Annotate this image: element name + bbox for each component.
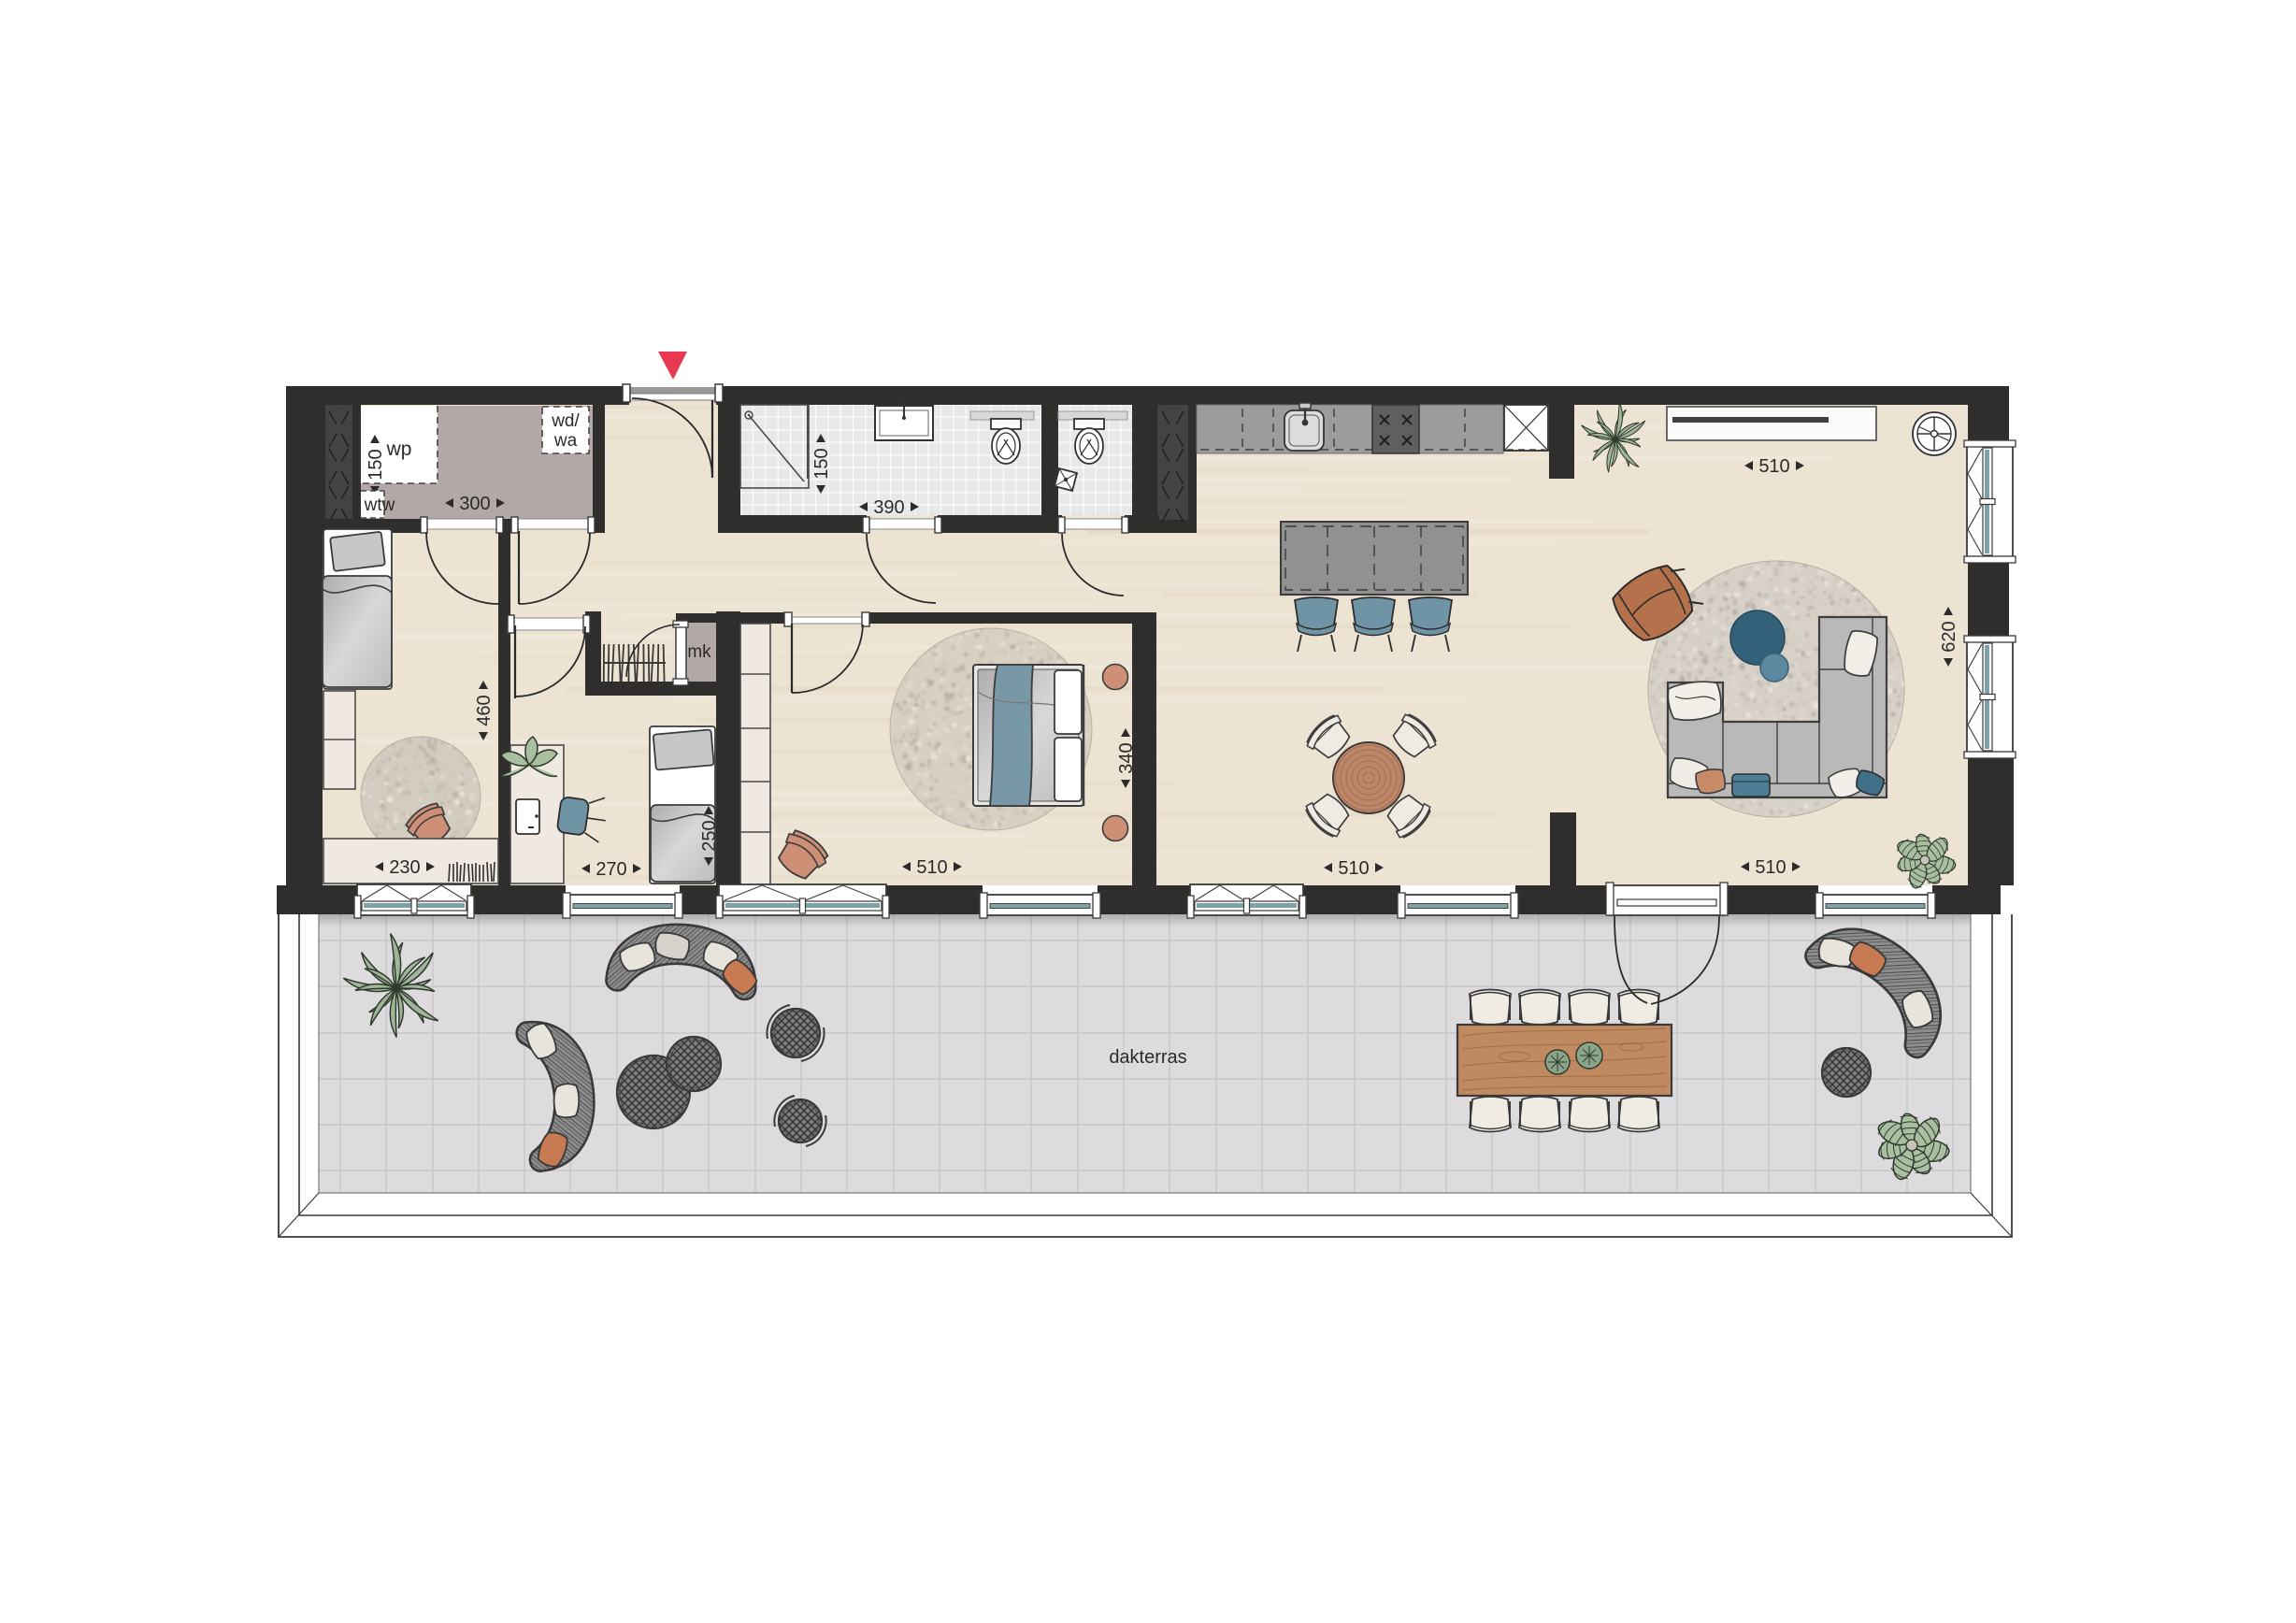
svg-text:510: 510	[1338, 858, 1369, 879]
svg-text:510: 510	[1755, 857, 1786, 878]
svg-text:300: 300	[459, 494, 490, 514]
svg-text:270: 270	[596, 859, 626, 880]
svg-text:150: 150	[366, 449, 386, 480]
svg-text:wtw: wtw	[364, 496, 395, 515]
svg-text:230: 230	[389, 857, 420, 878]
svg-text:mk: mk	[687, 642, 711, 662]
svg-text:250: 250	[699, 820, 720, 851]
svg-text:wd/: wd/	[551, 411, 580, 431]
svg-text:390: 390	[873, 497, 904, 518]
svg-text:510: 510	[1758, 456, 1789, 477]
svg-text:150: 150	[811, 448, 832, 479]
svg-text:wa: wa	[553, 431, 578, 451]
svg-text:dakterras: dakterras	[1109, 1047, 1186, 1068]
svg-text:510: 510	[916, 857, 947, 878]
svg-text:620: 620	[1939, 621, 1959, 652]
svg-text:wp: wp	[386, 438, 412, 460]
svg-text:340: 340	[1116, 742, 1137, 773]
svg-text:460: 460	[474, 695, 495, 725]
